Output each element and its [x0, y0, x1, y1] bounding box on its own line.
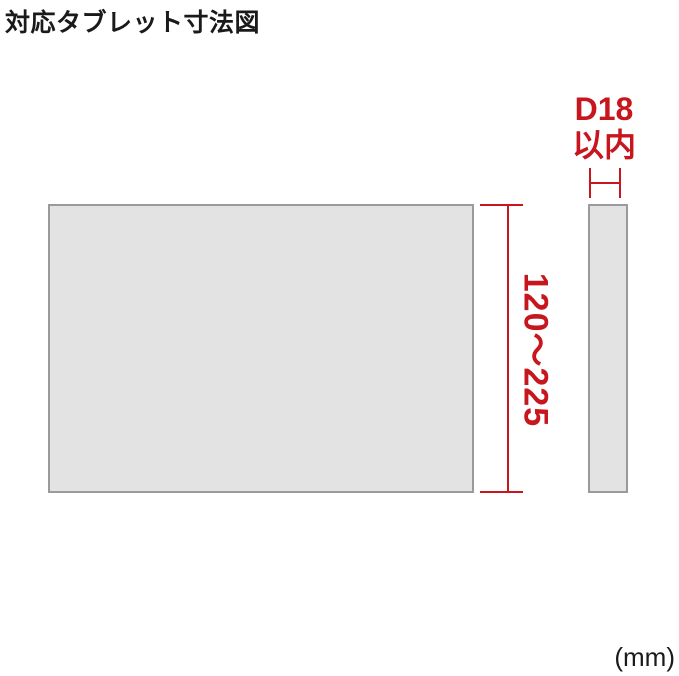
page-title: 対応タブレット寸法図	[5, 3, 260, 39]
depth-dimension-label: D18 以内	[572, 92, 636, 164]
height-dimension-bottom-tick	[480, 491, 523, 493]
height-dimension-line	[507, 204, 509, 493]
depth-dimension-qualifier: 以内	[572, 128, 636, 164]
height-dimension-top-tick	[480, 204, 523, 206]
depth-dimension-line	[589, 182, 621, 184]
dimension-diagram: 対応タブレット寸法図 120～225 D18 以内 (mm)	[0, 0, 679, 676]
height-dimension-label: 120～225	[515, 273, 564, 427]
unit-label: (mm)	[614, 642, 675, 673]
tablet-front-view-rect	[48, 204, 474, 493]
tablet-side-view-rect	[588, 204, 628, 493]
depth-dimension-value: D18	[572, 92, 636, 128]
